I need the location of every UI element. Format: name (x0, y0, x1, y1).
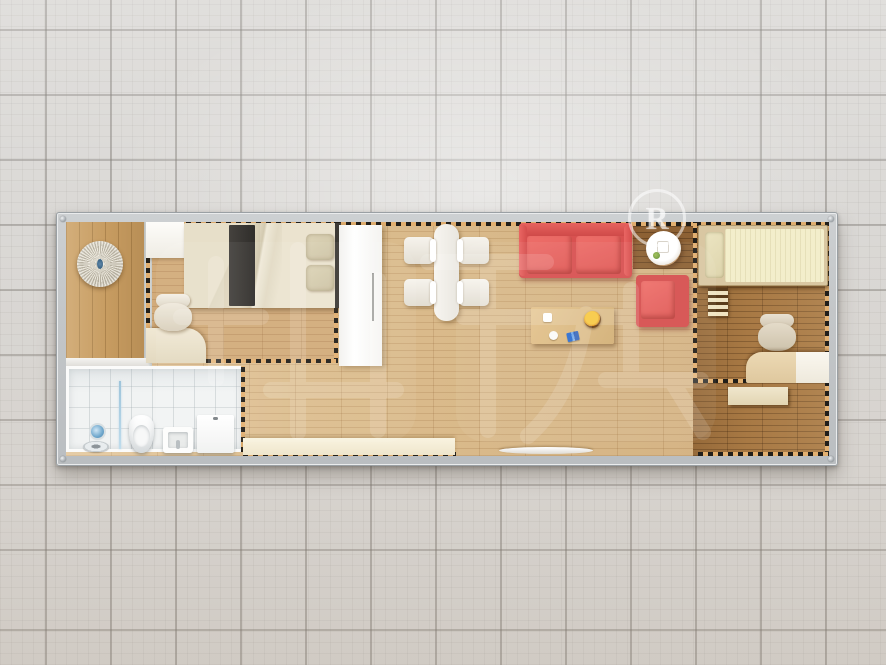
sofa-armrest (519, 225, 527, 276)
module-dash-bottom-right (698, 452, 829, 456)
floor-drain (83, 441, 109, 452)
round-ceiling-ornament (77, 241, 123, 287)
floorplan-render-page: { "scene": { "type": "container-house fl… (0, 0, 886, 665)
corner-bolt (828, 456, 834, 462)
red-sofa (519, 223, 632, 278)
mop-basin (163, 427, 193, 453)
double-bed (184, 223, 341, 308)
bathroom-cabinet (197, 415, 234, 453)
bed-runner (229, 225, 255, 306)
bedroom2-side-table (728, 387, 788, 405)
floorplan-interior (66, 222, 829, 456)
toy-blocks (566, 331, 580, 342)
remote-control (543, 313, 552, 322)
desk-white-section (796, 352, 829, 383)
dining-chair (404, 279, 434, 306)
bed-ladder (708, 288, 728, 316)
bedroom1-desk-chair (154, 294, 194, 334)
dining-table (434, 224, 459, 321)
cup (549, 331, 558, 340)
module-dash-bed2-left (693, 222, 697, 383)
bedroom2-desk-chair (758, 314, 798, 354)
registered-trademark-watermark: R (628, 189, 686, 247)
shower-glass-screen (119, 381, 121, 449)
single-bed (698, 225, 828, 286)
toilet (129, 415, 154, 453)
sofa-cushion (527, 236, 572, 274)
dining-chair (459, 237, 489, 264)
registered-letter: R (645, 200, 668, 237)
wardrobe (339, 225, 382, 366)
dining-chair (459, 279, 489, 306)
low-counter (243, 438, 455, 455)
pillow (306, 265, 334, 291)
red-armchair (636, 275, 689, 327)
corner-bolt (828, 216, 834, 222)
coffee-table (531, 307, 614, 344)
corner-bolt (60, 456, 66, 462)
chair-seat (758, 323, 796, 351)
sofa-armrest (624, 225, 632, 276)
sofa-cushion (576, 236, 621, 274)
fruit-bowl (584, 311, 601, 328)
dining-chair (404, 237, 434, 264)
bedroom2-desk (746, 352, 829, 383)
shower-head (91, 425, 104, 438)
sofa-backrest (519, 223, 632, 236)
pillow (306, 234, 334, 260)
chair-seat (154, 303, 192, 331)
corner-bolt (60, 216, 66, 222)
bedroom1-storage-cabinet (146, 222, 184, 258)
small-plant (653, 252, 660, 259)
door-threshold (499, 447, 593, 454)
container-floorplan (56, 212, 838, 466)
bed2-mattress (725, 229, 824, 282)
bathroom (66, 366, 245, 452)
bed2-pillow (705, 232, 724, 278)
